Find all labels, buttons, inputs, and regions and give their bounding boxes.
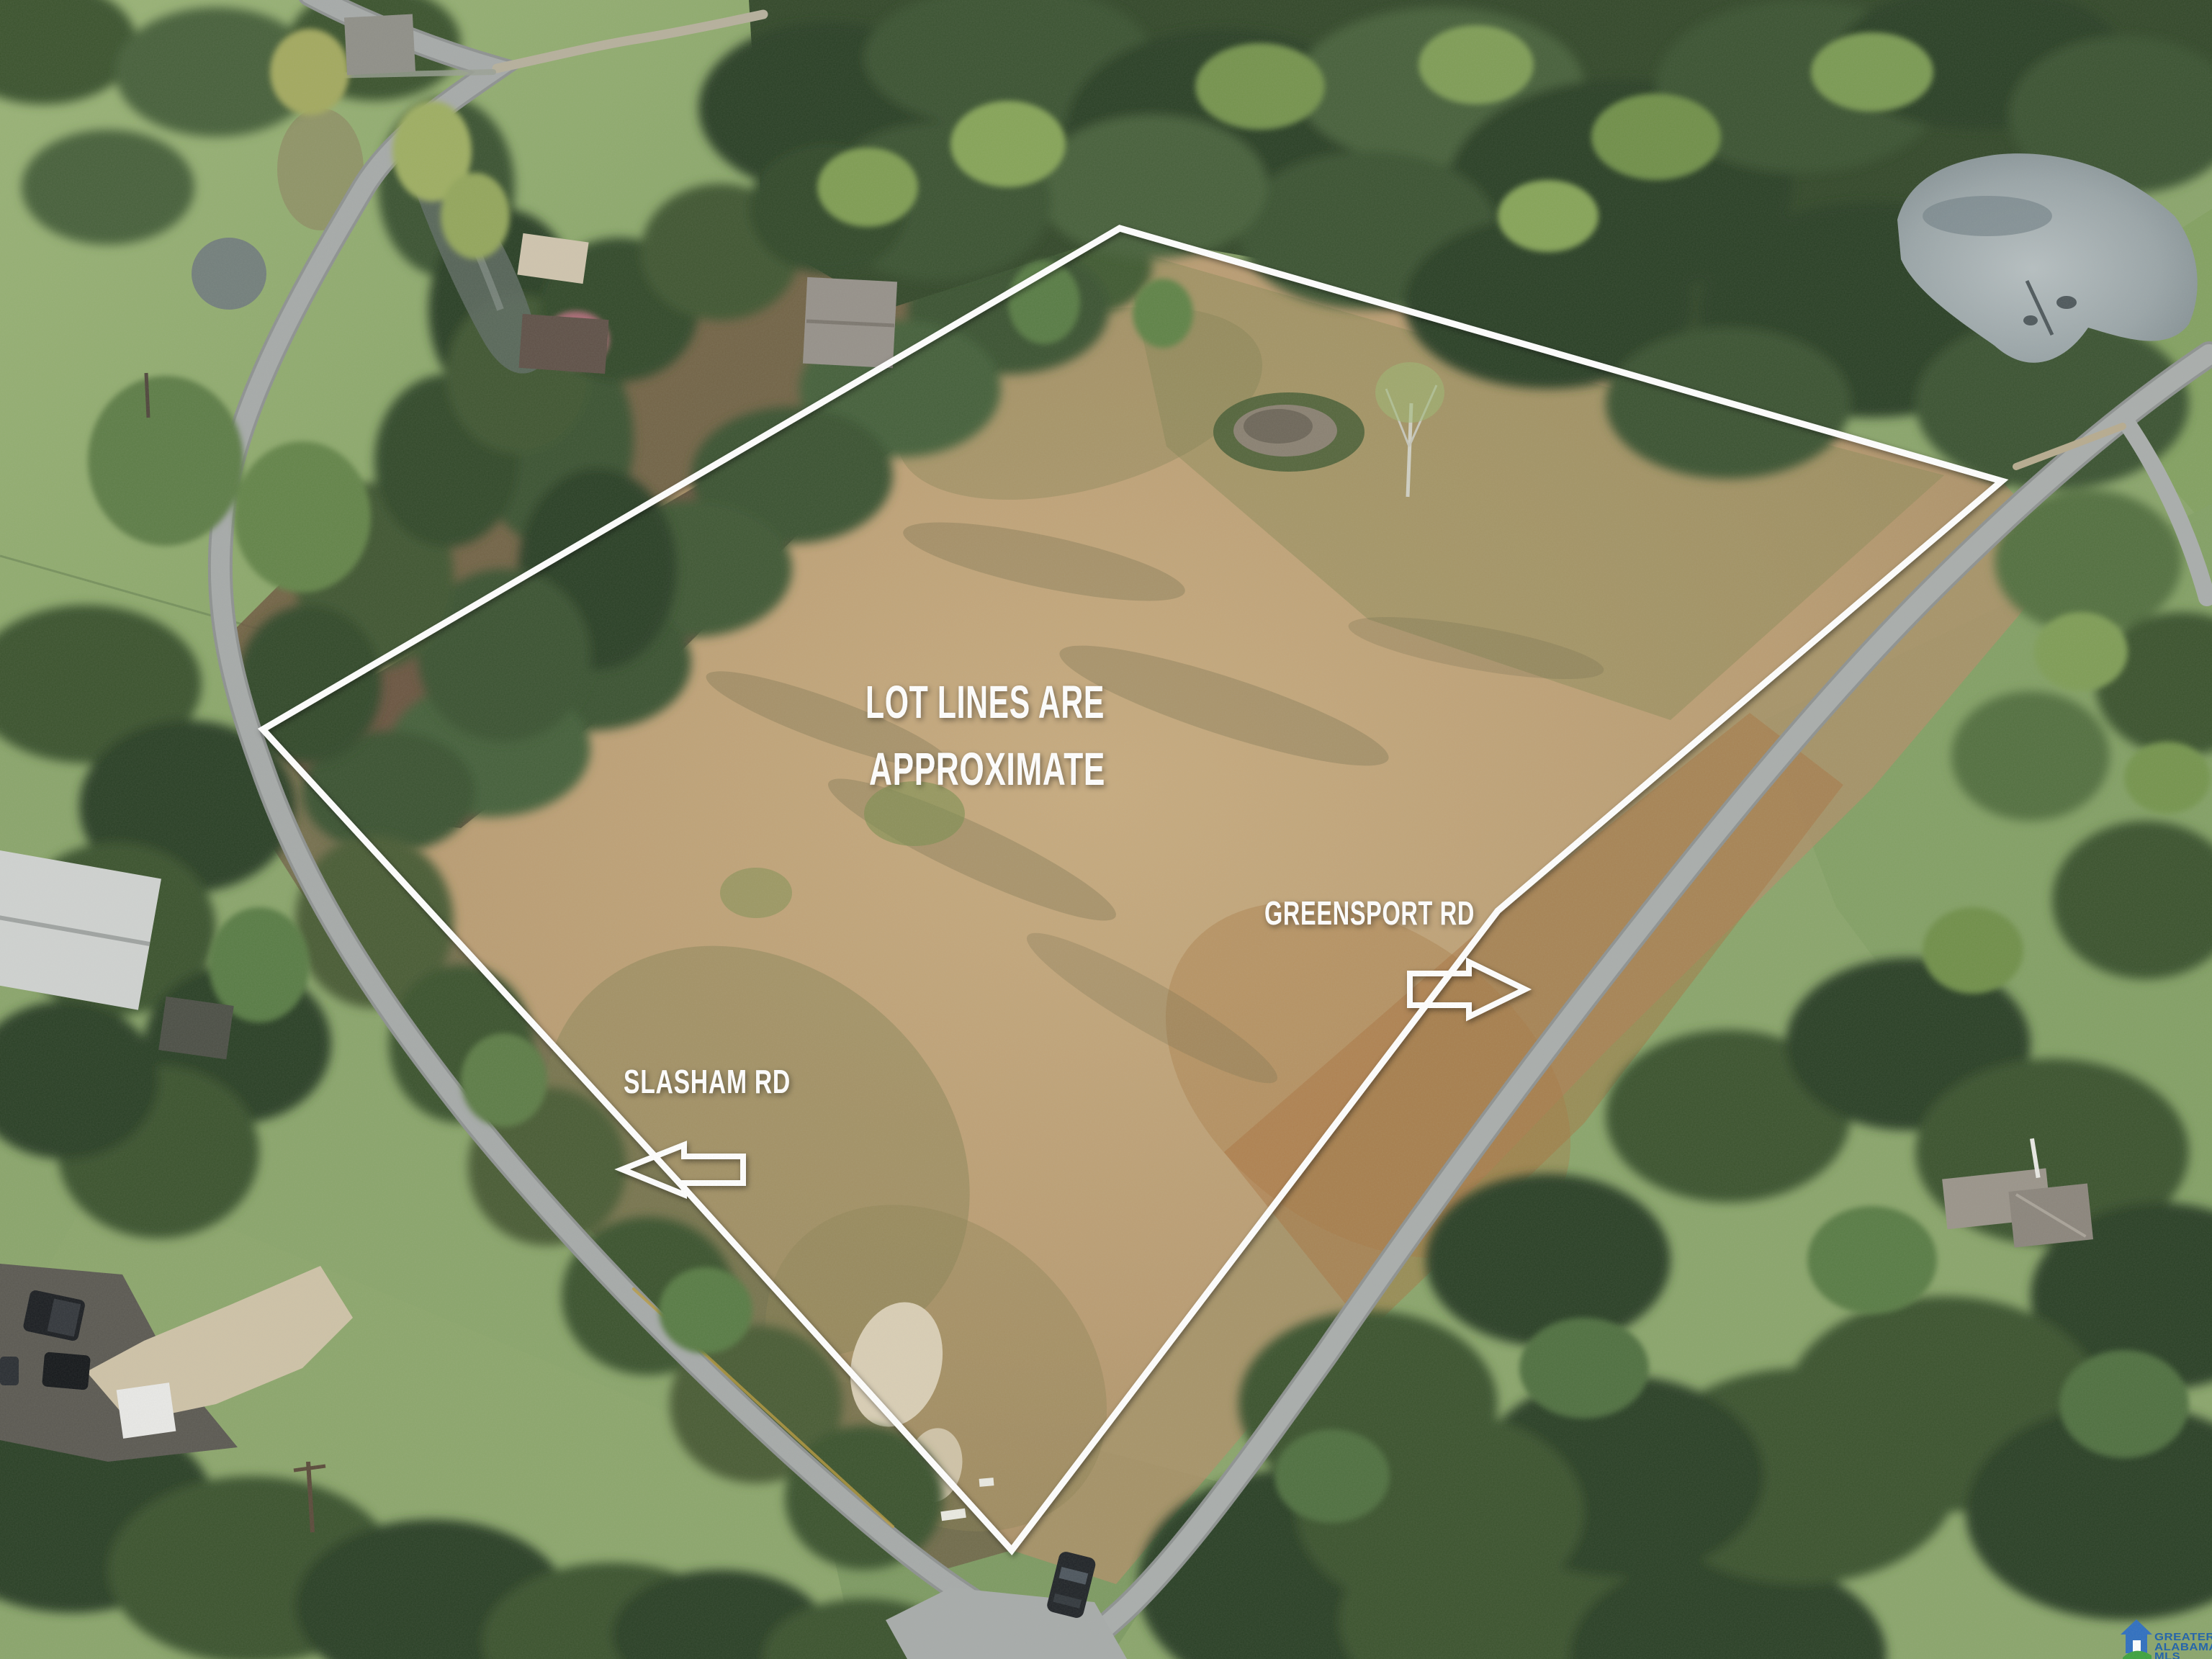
aerial-photo: LOT LINES ARE APPROXIMATE GREENSPORT RD … xyxy=(0,0,2212,1659)
photo-grain xyxy=(0,0,2212,1659)
